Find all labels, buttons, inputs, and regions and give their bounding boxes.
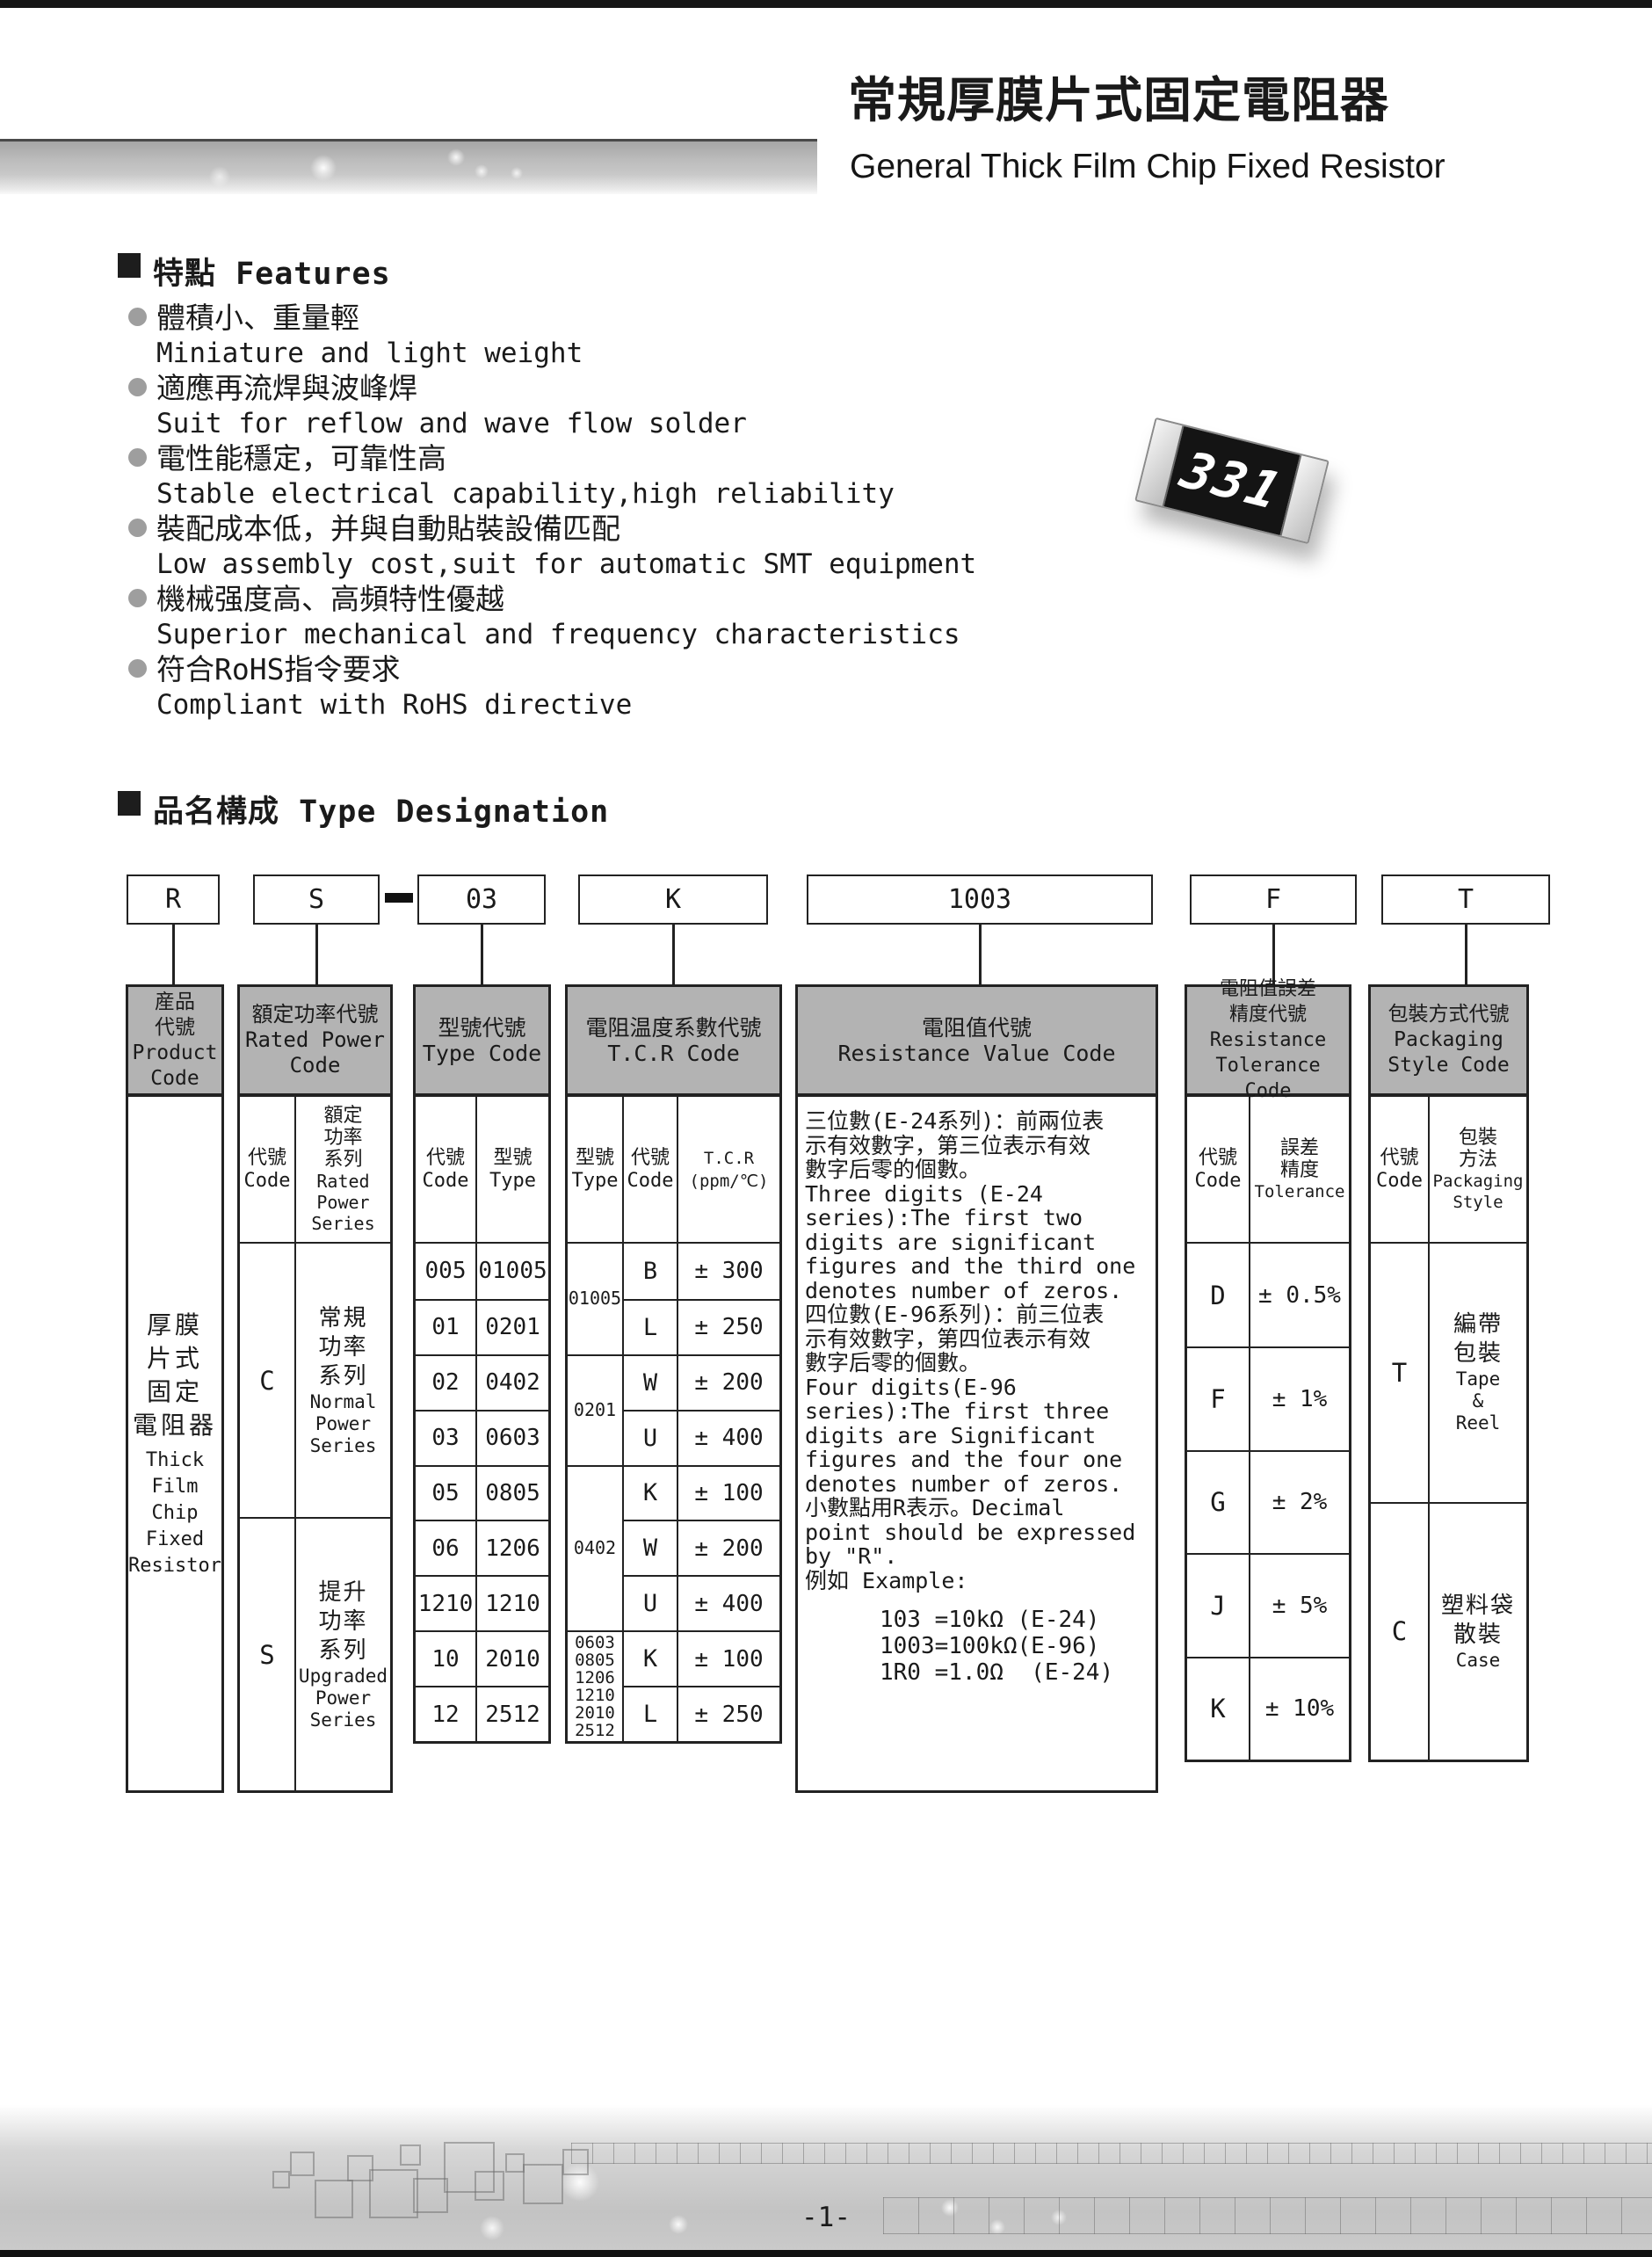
- type-size-cell: 01005: [477, 1244, 548, 1299]
- section-square-icon: [118, 253, 141, 278]
- feature-item: 裝配成本低，并與自動貼裝設備匹配 Low assembly cost,suit …: [128, 512, 919, 582]
- code-box-packaging: T: [1381, 874, 1550, 925]
- tcr-value-cell: ± 100: [678, 1630, 779, 1686]
- tcr-code-cell: U: [624, 1410, 678, 1465]
- bullet-icon: [128, 589, 147, 607]
- tcr-code-cell: U: [624, 1575, 678, 1630]
- type-size-cell: 1210: [477, 1575, 548, 1630]
- tcr-code-cell: L: [624, 1686, 678, 1741]
- feature-item: 適應再流焊與波峰焊 Suit for reflow and wave flow …: [128, 371, 919, 441]
- code-box-resistance: 1003: [807, 874, 1153, 925]
- tcr-type-group: 0603 0805 1206 1210 2010 2512: [568, 1630, 624, 1741]
- tcr-value-cell: ± 200: [678, 1520, 779, 1575]
- tcr-type-group: 01005: [568, 1244, 624, 1354]
- type-code-cell: 03: [416, 1410, 477, 1465]
- product-code-cell: 厚膜 片式 固定 電阻器 Thick Film Chip Fixed Resis…: [128, 1097, 221, 1790]
- column-header: 電阻温度系數代號 T.C.R Code: [568, 987, 779, 1097]
- power-code: C: [240, 1244, 296, 1517]
- type-code-body: 005 01005 01 0201 02 0402 03 0603 05 080…: [416, 1242, 548, 1741]
- power-series: 常規 功率 系列 Normal Power Series: [296, 1244, 390, 1517]
- resistance-value-cell: 三位數(E-24系列)：前兩位表 示有效數字，第三位表示有效 數字后零的個數。 …: [798, 1097, 1156, 1790]
- tolerance-code: D: [1187, 1244, 1250, 1346]
- power-series-en: Normal Power Series: [310, 1391, 377, 1457]
- type-code-cell: 12: [416, 1686, 477, 1741]
- bullet-icon: [128, 659, 147, 678]
- packaging-style-en: Tape & Reel: [1456, 1368, 1501, 1434]
- feature-text-en: Stable electrical capability,high reliab…: [156, 476, 895, 512]
- footer-gradient-band: [0, 2105, 1652, 2257]
- feature-item: 機械强度高、高頻特性優越 Superior mechanical and fre…: [128, 582, 919, 652]
- decor-square: [272, 2171, 290, 2188]
- type-designation-heading: 品名構成 Type Designation: [153, 787, 609, 831]
- connector-line: [979, 925, 982, 984]
- tcr-value-cell: ± 250: [678, 1686, 779, 1741]
- section-square-icon: [118, 791, 141, 816]
- subheader-tolerance-cn: 誤差 精度: [1280, 1137, 1319, 1181]
- type-size-cell: 1206: [477, 1520, 548, 1575]
- decor-square: [505, 2153, 525, 2173]
- feature-item: 符合RoHS指令要求 Compliant with RoHS directive: [128, 652, 919, 722]
- subheader-code: 代號 Code: [624, 1097, 678, 1242]
- packaging-table: 包裝方式代號 Packaging Style Code 代號 Code 包裝 方…: [1368, 984, 1529, 1762]
- features-list: 體積小、重量輕 Miniature and light weight 適應再流焊…: [128, 301, 919, 722]
- feature-text-en: Low assembly cost,suit for automatic SMT…: [156, 547, 976, 582]
- product-name-en: Thick Film Chip Fixed Resistor: [128, 1448, 221, 1579]
- top-border-bar: [0, 0, 1652, 8]
- type-size-cell: 2010: [477, 1630, 548, 1686]
- feature-text-cn: 機械强度高、高頻特性優越: [156, 582, 504, 617]
- tolerance-code: J: [1187, 1553, 1250, 1656]
- packaging-code: C: [1371, 1502, 1430, 1760]
- footer-square-strip: [571, 2143, 1652, 2164]
- type-size-cell: 0201: [477, 1299, 548, 1354]
- code-box-power: S: [253, 874, 380, 925]
- type-code-cell: 02: [416, 1354, 477, 1410]
- code-box-tolerance: F: [1190, 874, 1357, 925]
- tolerance-code: K: [1187, 1657, 1250, 1760]
- product-code-table: 産品 代號 Product Code 厚膜 片式 固定 電阻器 Thick Fi…: [126, 984, 224, 1793]
- page-title-cn: 常規厚膜片式固定電阻器: [848, 74, 1463, 127]
- resistance-value-table: 電阻值代號 Resistance Value Code 三位數(E-24系列)：…: [795, 984, 1158, 1793]
- decor-square: [290, 2152, 315, 2176]
- decor-square: [523, 2164, 563, 2204]
- tolerance-code: F: [1187, 1346, 1250, 1449]
- tcr-body: 01005 0201 0402 0603 0805 1206 1210 2010…: [568, 1242, 779, 1741]
- decor-square: [400, 2145, 421, 2166]
- tolerance-value: ± 5%: [1250, 1553, 1349, 1656]
- resistor-marking: 331: [1173, 440, 1291, 521]
- subheader-tolerance-en: Tolerance: [1255, 1181, 1345, 1202]
- tolerance-table: 電阻值誤差 精度代號 Resistance Tolerance Code 代號 …: [1185, 984, 1351, 1762]
- tcr-code-cell: K: [624, 1465, 678, 1520]
- tcr-code-cell: W: [624, 1520, 678, 1575]
- type-code-cell: 1210: [416, 1575, 477, 1630]
- code-box-product: R: [127, 874, 220, 925]
- column-header: 電阻值代號 Resistance Value Code: [798, 987, 1156, 1097]
- subheader-tcr: T.C.R (ppm/℃): [678, 1097, 779, 1242]
- subheader-series-cn: 額定 功率 系列: [323, 1105, 362, 1171]
- packaging-style: 編帶 包裝 Tape & Reel: [1430, 1244, 1526, 1502]
- type-size-cell: 2512: [477, 1686, 548, 1741]
- tcr-value-cell: ± 400: [678, 1410, 779, 1465]
- code-box-type: 03: [417, 874, 546, 925]
- connector-line: [481, 925, 483, 984]
- feature-text-en: Suit for reflow and wave flow solder: [156, 406, 747, 441]
- subheader-type: 型號 Type: [477, 1097, 548, 1242]
- tolerance-value: ± 0.5%: [1250, 1244, 1349, 1346]
- rated-power-table: 額定功率代號 Rated Power Code 代號 Code 額定 功率 系列…: [237, 984, 393, 1793]
- type-code-cell: 05: [416, 1465, 477, 1520]
- bottom-border-bar: [0, 2250, 1652, 2257]
- tcr-type-group: 0201: [568, 1354, 624, 1465]
- tcr-value-cell: ± 100: [678, 1465, 779, 1520]
- tcr-value-cell: ± 250: [678, 1299, 779, 1354]
- type-size-cell: 0402: [477, 1354, 548, 1410]
- tcr-code-table: 電阻温度系數代號 T.C.R Code 型號 Type 代號 Code T.C.…: [565, 984, 782, 1744]
- feature-text-cn: 符合RoHS指令要求: [156, 652, 400, 687]
- resistor-chip-photo: 331: [1134, 417, 1330, 544]
- column-header: 産品 代號 Product Code: [128, 987, 221, 1097]
- subheader-row: 型號 Type 代號 Code T.C.R (ppm/℃): [568, 1097, 779, 1242]
- type-code-cell: 06: [416, 1520, 477, 1575]
- subheader-style: 包裝 方法 Packaging Style: [1430, 1097, 1526, 1242]
- subheader-code: 代號 Code: [240, 1097, 296, 1242]
- type-code-table: 型號代號 Type Code 代號 Code 型號 Type 005 01005…: [413, 984, 551, 1744]
- tcr-code-cell: W: [624, 1354, 678, 1410]
- subheader-row: 代號 Code 額定 功率 系列 Rated Power Series: [240, 1097, 390, 1242]
- bullet-icon: [128, 378, 147, 396]
- packaging-code: T: [1371, 1244, 1430, 1502]
- decor-square: [562, 2149, 589, 2175]
- subheader-series-en: Rated Power Series: [311, 1171, 374, 1234]
- column-header: 型號代號 Type Code: [416, 987, 548, 1097]
- tcr-value-cell: ± 200: [678, 1354, 779, 1410]
- subheader-code: 代號 Code: [1371, 1097, 1430, 1242]
- code-separator-dash: [385, 893, 413, 903]
- tcr-value-cell: ± 400: [678, 1575, 779, 1630]
- feature-text-en: Superior mechanical and frequency charac…: [156, 617, 960, 652]
- subheader-tolerance: 誤差 精度 Tolerance: [1250, 1097, 1349, 1242]
- bullet-icon: [128, 308, 147, 326]
- tcr-value-cell: ± 300: [678, 1244, 779, 1299]
- feature-item: 電性能穩定，可靠性高 Stable electrical capability,…: [128, 441, 919, 512]
- packaging-body: T 編帶 包裝 Tape & Reel C 塑料袋 散裝 Case: [1371, 1242, 1526, 1760]
- power-series-en: Upgraded Power Series: [299, 1666, 388, 1731]
- column-header: 電阻值誤差 精度代號 Resistance Tolerance Code: [1187, 987, 1349, 1097]
- subheader-code: 代號 Code: [416, 1097, 477, 1242]
- code-box-tcr: K: [578, 874, 768, 925]
- packaging-style: 塑料袋 散裝 Case: [1430, 1502, 1526, 1760]
- bullet-icon: [128, 448, 147, 467]
- product-name-cn: 厚膜 片式 固定 電阻器: [133, 1309, 217, 1442]
- tcr-type-group: 0402: [568, 1465, 624, 1631]
- tolerance-value: ± 10%: [1250, 1657, 1349, 1760]
- power-code: S: [240, 1517, 296, 1790]
- packaging-style-cn: 編帶 包裝: [1453, 1310, 1503, 1368]
- resistance-value-description: 三位數(E-24系列)：前兩位表 示有效數字，第三位表示有效 數字后零的個數。 …: [805, 1109, 1150, 1593]
- bullet-icon: [128, 519, 147, 537]
- tolerance-body: D ± 0.5% F ± 1% G ± 2% J ± 5% K ± 10%: [1187, 1242, 1349, 1760]
- feature-text-en: Compliant with RoHS directive: [156, 687, 632, 722]
- feature-text-cn: 適應再流焊與波峰焊: [156, 371, 417, 406]
- page-number: -1-: [0, 2202, 1652, 2233]
- type-code-cell: 005: [416, 1244, 477, 1299]
- subheader-code: 代號 Code: [1187, 1097, 1250, 1242]
- resistance-value-examples: 103 =10kΩ (E-24) 1003=100kΩ(E-96) 1R0 =1…: [805, 1607, 1150, 1686]
- feature-text-cn: 電性能穩定，可靠性高: [156, 441, 446, 476]
- subheader-type: 型號 Type: [568, 1097, 624, 1242]
- feature-text-cn: 裝配成本低，并與自動貼裝設備匹配: [156, 512, 620, 547]
- tolerance-value: ± 2%: [1250, 1450, 1349, 1553]
- connector-line: [1465, 925, 1467, 984]
- column-header: 包裝方式代號 Packaging Style Code: [1371, 987, 1526, 1097]
- connector-line: [672, 925, 675, 984]
- header-gradient-band: [0, 139, 817, 194]
- tolerance-value: ± 1%: [1250, 1346, 1349, 1449]
- subheader-style-en: Packaging Style: [1433, 1171, 1524, 1213]
- subheader-style-cn: 包裝 方法: [1459, 1127, 1497, 1171]
- feature-text-cn: 體積小、重量輕: [156, 301, 359, 336]
- type-size-cell: 0805: [477, 1465, 548, 1520]
- subheader-row: 代號 Code 型號 Type: [416, 1097, 548, 1242]
- subheader-row: 代號 Code 包裝 方法 Packaging Style: [1371, 1097, 1526, 1242]
- feature-item: 體積小、重量輕 Miniature and light weight: [128, 301, 919, 371]
- subheader-series: 額定 功率 系列 Rated Power Series: [296, 1097, 390, 1242]
- power-series: 提升 功率 系列 Upgraded Power Series: [296, 1517, 390, 1790]
- column-header: 額定功率代號 Rated Power Code: [240, 987, 390, 1097]
- type-code-cell: 01: [416, 1299, 477, 1354]
- decor-square: [475, 2171, 504, 2201]
- page-title-en: General Thick Film Chip Fixed Resistor: [850, 148, 1518, 186]
- connector-line: [172, 925, 175, 984]
- power-series-cn: 常規 功率 系列: [318, 1304, 367, 1391]
- type-size-cell: 0603: [477, 1410, 548, 1465]
- connector-line: [315, 925, 318, 984]
- packaging-style-cn: 塑料袋 散裝: [1441, 1592, 1515, 1650]
- tcr-code-cell: K: [624, 1630, 678, 1686]
- subheader-row: 代號 Code 誤差 精度 Tolerance: [1187, 1097, 1349, 1242]
- type-code-cell: 10: [416, 1630, 477, 1686]
- feature-text-en: Miniature and light weight: [156, 336, 583, 371]
- packaging-style-en: Case: [1456, 1650, 1501, 1672]
- features-heading: 特點 Features: [153, 249, 391, 294]
- resistor-body: 331: [1164, 426, 1301, 535]
- tolerance-code: G: [1187, 1450, 1250, 1553]
- rated-power-body: C 常規 功率 系列 Normal Power Series S 提升 功率 系…: [240, 1242, 390, 1790]
- power-series-cn: 提升 功率 系列: [318, 1578, 367, 1666]
- tcr-code-cell: B: [624, 1244, 678, 1299]
- tcr-code-cell: L: [624, 1299, 678, 1354]
- connector-line: [1272, 925, 1275, 984]
- datasheet-page: 常規厚膜片式固定電阻器 General Thick Film Chip Fixe…: [0, 0, 1652, 2257]
